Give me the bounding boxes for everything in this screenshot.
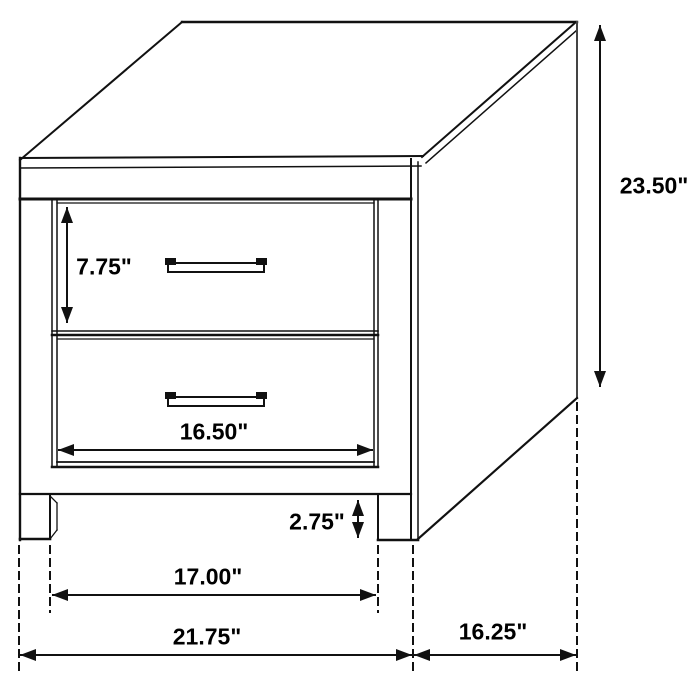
dimension-label-overall-height: 23.50" [620,175,688,198]
dimension-arrows [21,26,600,655]
side-bottom-edge [418,398,577,539]
left-leg-side-top [50,496,57,503]
top-right-edge-inner [426,30,577,163]
nightstand-linework [0,0,700,700]
top-right-edge-outer [422,22,576,157]
front-top-edge-outer [20,156,423,158]
dimension-label-inner-leg-span: 17.00" [174,566,242,589]
drawer-handle-bottom [165,392,267,406]
dimension-label-drawer-width: 16.50" [180,421,248,444]
drawer-handle-top [165,258,267,272]
dimension-label-drawer-height: 7.75" [76,256,132,279]
nightstand-outline [20,22,577,540]
dimension-label-overall-depth: 16.25" [459,621,527,644]
dimension-diagram: 7.75" 23.50" 16.50" 2.75" 17.00" 21.75" … [0,0,700,700]
left-leg-side-bottom [50,530,57,539]
dimension-label-base-clearance: 2.75" [289,511,345,534]
front-top-edge-inner [20,166,421,168]
dimension-label-overall-width: 21.75" [173,626,241,649]
top-left-edge [20,22,182,160]
